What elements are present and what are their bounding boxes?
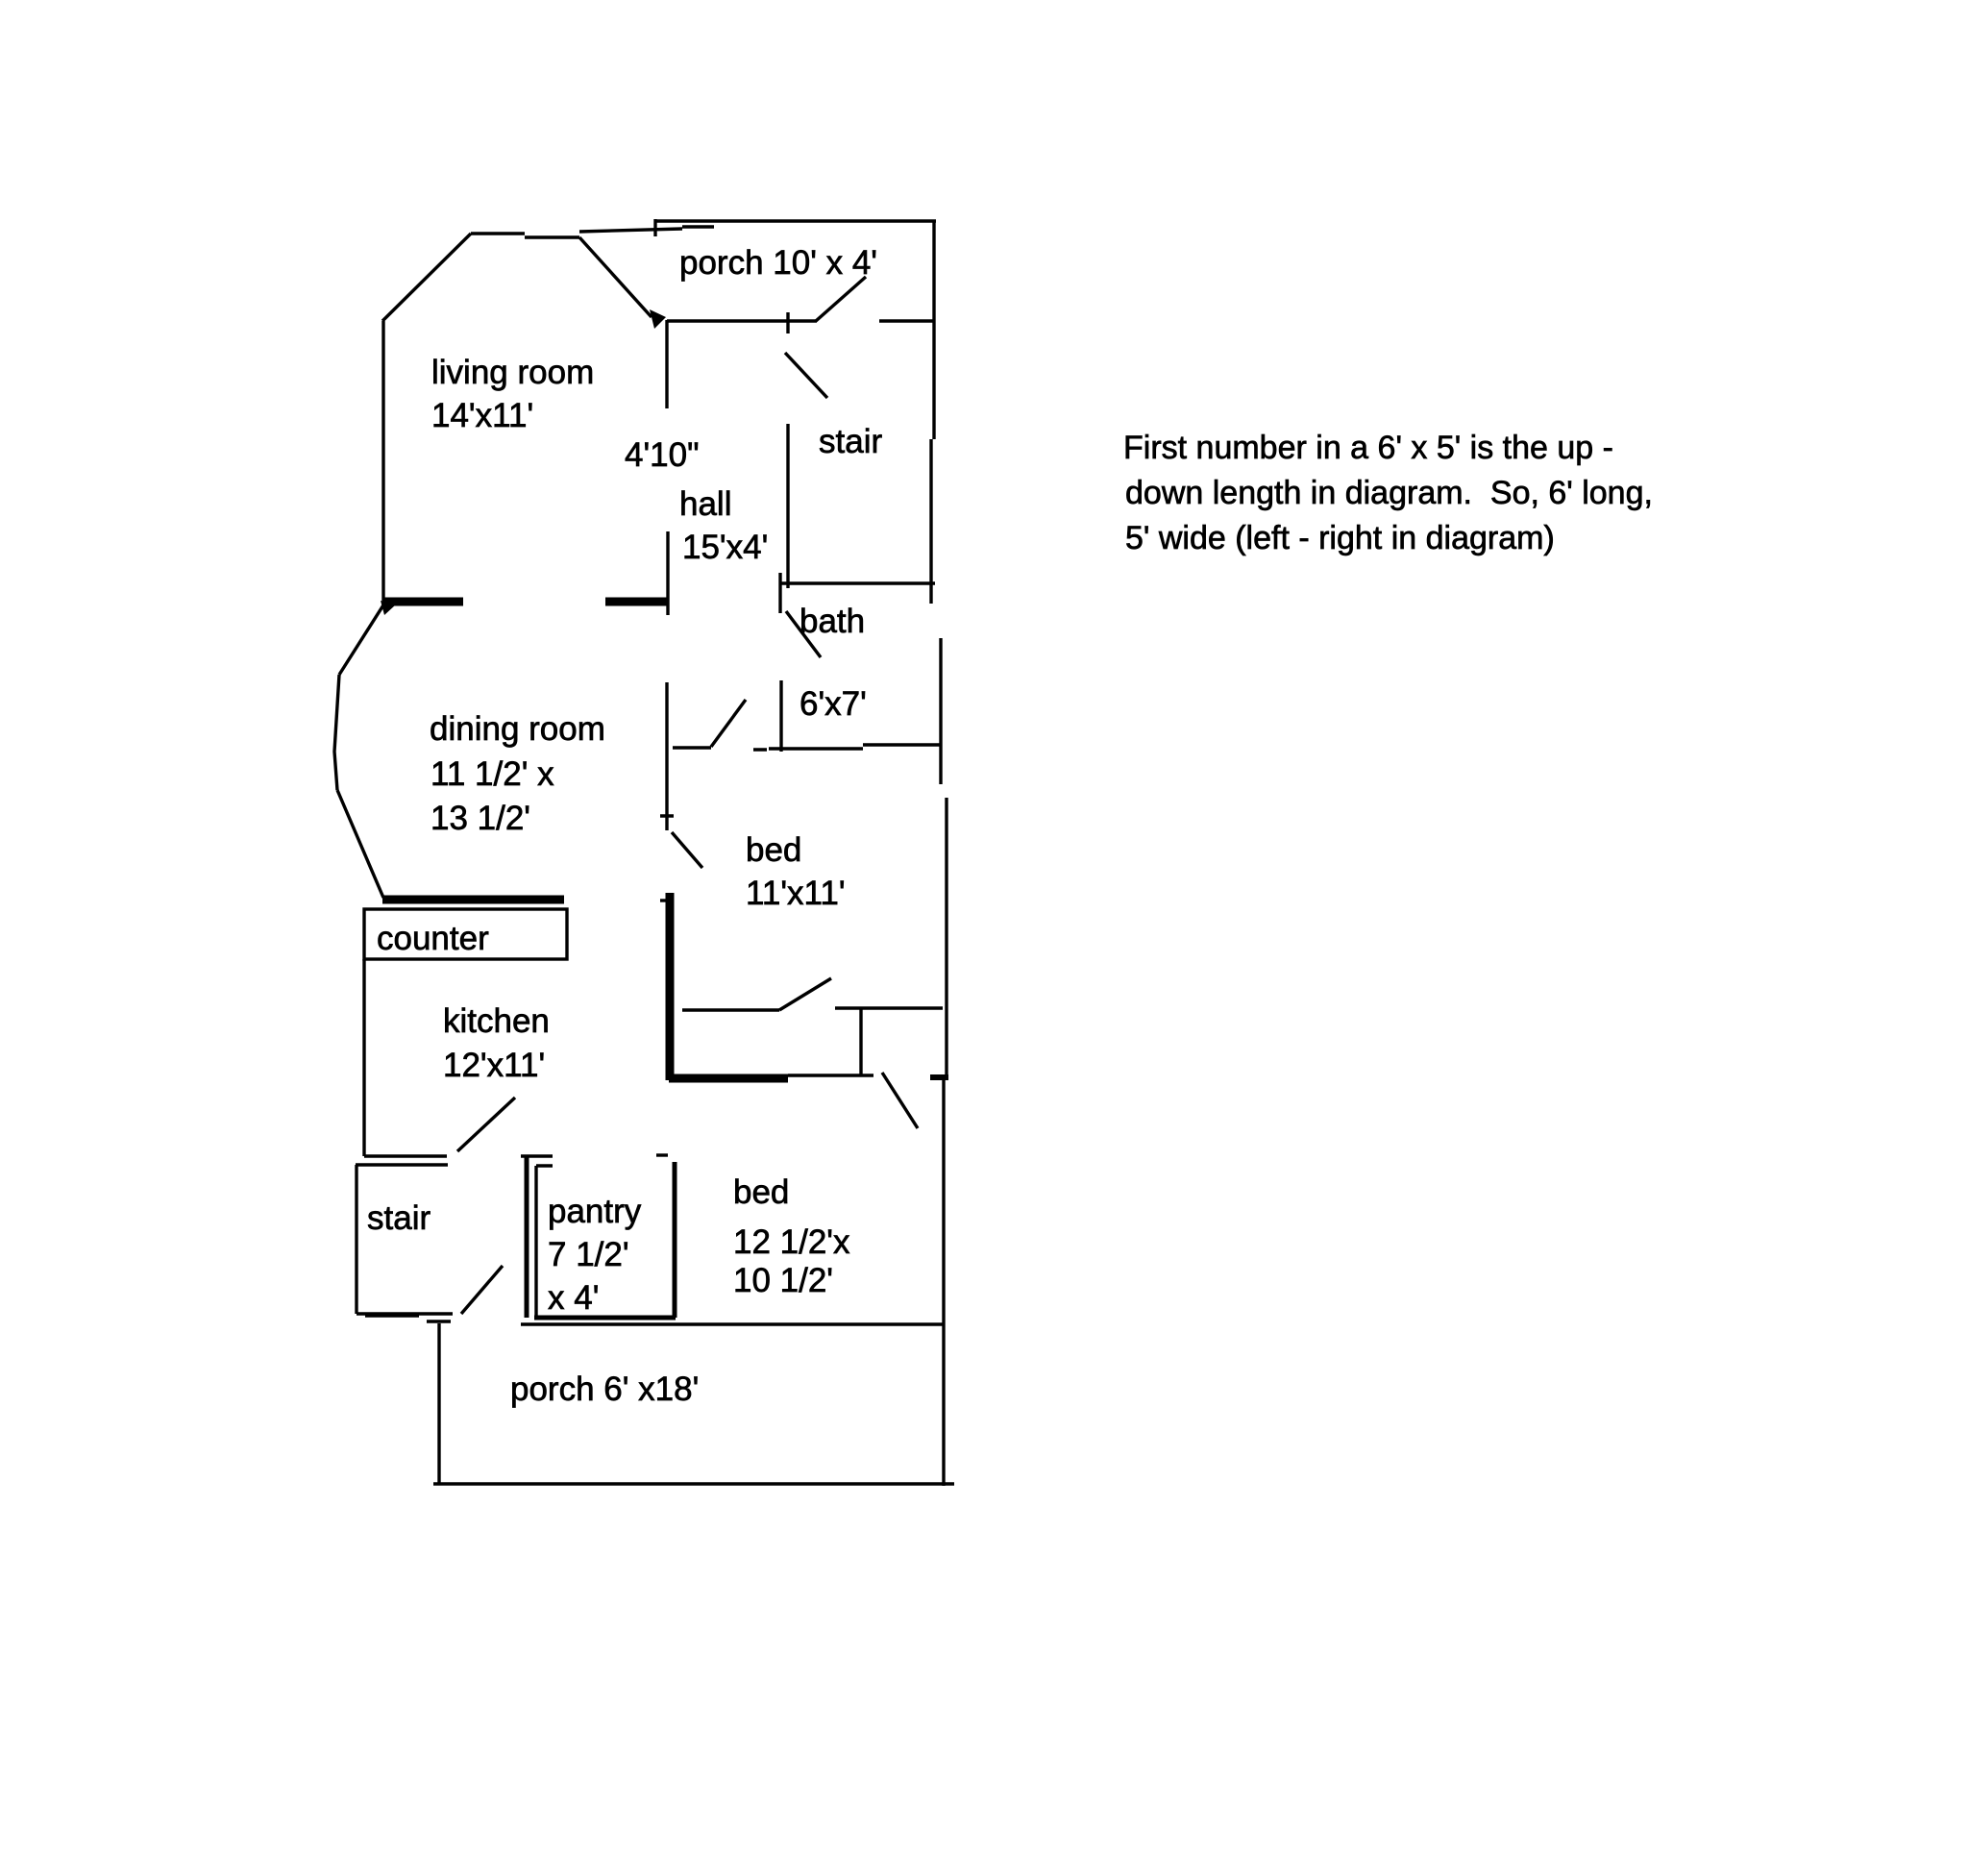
svg-text:stair: stair [367,1199,430,1237]
svg-text:12 1/2'x: 12 1/2'x [733,1223,850,1261]
svg-text:First number in a 6' x 5' is t: First number in a 6' x 5' is the up - [1123,430,1613,466]
svg-text:hall: hall [679,485,731,523]
svg-text:bath: bath [799,603,865,640]
svg-text:porch 6' x18': porch 6' x18' [510,1370,699,1408]
svg-text:pantry: pantry [548,1193,642,1230]
svg-text:porch 10' x 4': porch 10' x 4' [679,244,877,282]
svg-text:living room: living room [431,354,594,391]
svg-text:14'x11': 14'x11' [431,397,533,434]
svg-text:13 1/2': 13 1/2' [430,800,530,837]
svg-text:counter: counter [377,920,489,957]
svg-text:kitchen: kitchen [443,1002,550,1040]
svg-text:x 4': x 4' [548,1279,599,1317]
svg-text:stair: stair [819,423,882,460]
svg-text:10 1/2': 10 1/2' [733,1262,833,1299]
svg-text:7 1/2': 7 1/2' [548,1236,629,1273]
svg-text:bed: bed [733,1173,789,1211]
svg-text:4'10": 4'10" [625,436,700,474]
svg-text:dining room: dining room [430,710,605,748]
svg-text:5' wide (left - right in diagr: 5' wide (left - right in diagram) [1125,520,1555,556]
svg-text:12'x11': 12'x11' [443,1047,545,1084]
svg-text:11'x11': 11'x11' [746,875,846,912]
svg-text:6'x7': 6'x7' [799,685,867,723]
svg-text:bed: bed [746,831,801,869]
svg-text:11 1/2' x: 11 1/2' x [430,755,554,793]
svg-text:down length in diagram. So, 6: down length in diagram. So, 6' long, [1125,475,1653,511]
svg-text:15'x4': 15'x4' [682,529,768,566]
